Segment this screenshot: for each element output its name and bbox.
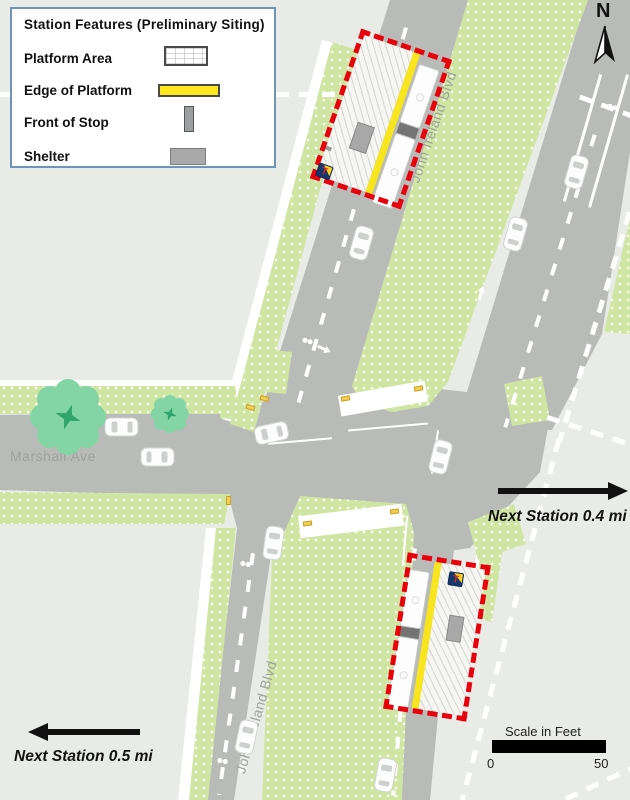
shelter: [446, 615, 465, 643]
shelter-swatch: [170, 148, 206, 165]
scale-min-label: 0: [487, 756, 494, 771]
curb-ramp: [226, 496, 231, 505]
tree-icon: [151, 395, 189, 433]
next-station-east-arrowhead-icon: [608, 482, 628, 500]
platform-area-swatch: [164, 46, 208, 66]
metro-transit-logo-icon: T: [447, 571, 464, 587]
legend-item-front-of-stop: Front of Stop: [24, 115, 109, 130]
legend-item-shelter: Shelter: [24, 149, 70, 164]
metro-transit-logo-icon: T: [315, 162, 334, 180]
bench-icon: [323, 145, 332, 151]
curb-ramp: [390, 508, 400, 514]
next-station-west-arrowhead-icon: [28, 723, 48, 741]
north-arrow-icon: [592, 24, 618, 66]
next-station-east-label: Next Station 0.4 mi: [488, 508, 627, 526]
legend-item-edge-of-platform: Edge of Platform: [24, 83, 132, 98]
edge-of-platform-swatch: [158, 84, 220, 97]
scale-bar-title: Scale in Feet: [505, 724, 581, 739]
edge-of-platform: [412, 562, 442, 709]
car-icon: [105, 418, 139, 437]
edge-of-platform: [365, 50, 421, 196]
station-siting-map: John Ireland Blvd John Ireland Blvd Mars…: [0, 0, 630, 800]
legend-title: Station Features (Preliminary Siting): [24, 17, 265, 32]
car-icon: [141, 448, 175, 467]
scale-bar: [492, 740, 606, 753]
scale-max-label: 50: [594, 756, 608, 771]
legend: Station Features (Preliminary Siting) Pl…: [10, 7, 276, 168]
tree-icon: [30, 379, 106, 455]
front-of-stop-swatch: [184, 106, 194, 132]
next-station-west-label: Next Station 0.5 mi: [14, 748, 153, 766]
legend-item-platform-area: Platform Area: [24, 51, 112, 66]
shelter: [349, 122, 375, 154]
next-station-west-arrow: [48, 729, 140, 735]
curb-ramp: [303, 520, 313, 526]
next-station-east-arrow: [498, 488, 608, 494]
north-label: N: [596, 0, 610, 23]
